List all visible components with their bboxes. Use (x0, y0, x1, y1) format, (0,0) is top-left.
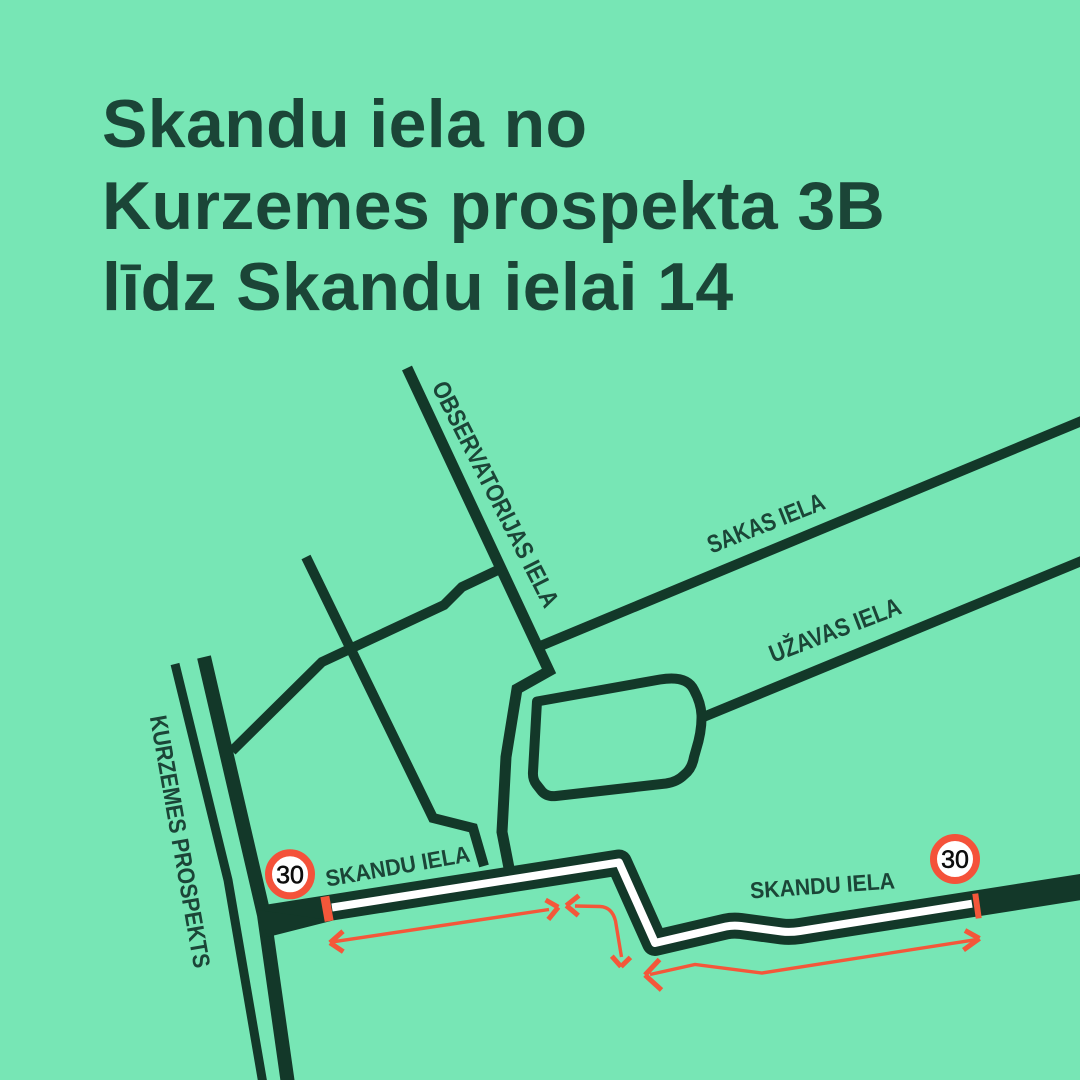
svg-text:SKANDU IELA: SKANDU IELA (749, 867, 895, 903)
svg-text:UŽAVAS IELA: UŽAVAS IELA (765, 591, 906, 669)
svg-text:30: 30 (941, 846, 969, 874)
svg-text:KURZEMES PROSPEKTS: KURZEMES PROSPEKTS (144, 713, 215, 970)
svg-text:30: 30 (276, 861, 304, 889)
